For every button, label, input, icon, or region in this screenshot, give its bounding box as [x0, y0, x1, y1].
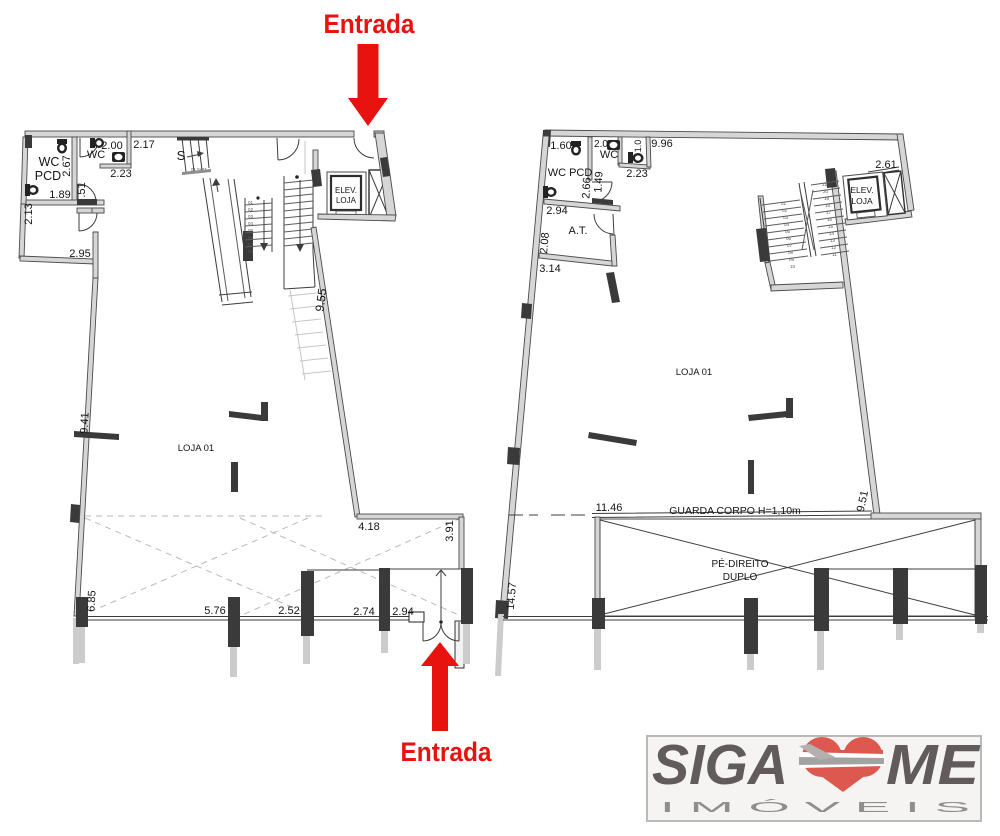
svg-text:6.85: 6.85 [85, 590, 98, 612]
svg-text:06: 06 [786, 236, 792, 241]
svg-text:03: 03 [248, 214, 254, 219]
svg-text:LOJA 01: LOJA 01 [178, 443, 214, 454]
svg-text:2.74: 2.74 [353, 606, 374, 618]
svg-text:.51: .51 [76, 182, 88, 197]
svg-text:WC: WC [87, 149, 105, 161]
svg-text:1.0: 1.0 [633, 140, 643, 153]
svg-text:2.52: 2.52 [278, 605, 299, 617]
svg-text:21: 21 [822, 182, 828, 187]
svg-text:WC: WC [600, 149, 618, 161]
svg-text:03: 03 [783, 215, 789, 220]
svg-text:12: 12 [831, 245, 837, 250]
svg-text:2.66: 2.66 [580, 177, 593, 199]
svg-text:PÉ-DIREITO: PÉ-DIREITO [711, 557, 768, 570]
svg-text:07: 07 [787, 243, 793, 248]
svg-text:2.08: 2.08 [538, 232, 552, 254]
svg-text:02: 02 [782, 208, 788, 213]
svg-text:11: 11 [832, 252, 837, 257]
svg-text:07: 07 [248, 242, 254, 247]
svg-text:06: 06 [248, 235, 254, 240]
svg-text:2.94: 2.94 [392, 606, 413, 618]
svg-text:01: 01 [781, 201, 787, 206]
svg-text:1.89: 1.89 [49, 189, 70, 201]
svg-text:19: 19 [824, 196, 830, 201]
svg-text:2.67: 2.67 [61, 155, 73, 176]
svg-text:05: 05 [248, 228, 254, 233]
svg-text:14.57: 14.57 [505, 582, 519, 610]
svg-text:2.94: 2.94 [546, 205, 567, 217]
svg-text:ELEV.: ELEV. [335, 186, 357, 195]
svg-text:GUARDA CORPO H=1,10m: GUARDA CORPO H=1,10m [669, 505, 801, 517]
svg-text:17: 17 [826, 210, 832, 215]
svg-text:3.14: 3.14 [539, 263, 560, 275]
svg-text:08: 08 [248, 249, 254, 254]
svg-text:14: 14 [829, 231, 835, 236]
svg-text:Entrada: Entrada [401, 737, 493, 767]
svg-text:9.51: 9.51 [855, 489, 871, 512]
svg-text:WC PCD: WC PCD [548, 167, 593, 179]
svg-text:13: 13 [830, 238, 836, 243]
svg-text:16: 16 [827, 217, 833, 222]
svg-text:09: 09 [789, 257, 795, 262]
svg-text:WC: WC [39, 155, 60, 169]
svg-text:9.41: 9.41 [78, 412, 91, 434]
svg-text:9.96: 9.96 [651, 138, 672, 150]
svg-text:2.17: 2.17 [133, 139, 154, 151]
svg-text:11.46: 11.46 [596, 502, 623, 514]
svg-text:A.T.: A.T. [569, 225, 588, 237]
svg-text:4.18: 4.18 [358, 521, 379, 533]
svg-text:04: 04 [248, 221, 254, 226]
svg-text:LOJA: LOJA [336, 196, 357, 205]
svg-text:DUPLO: DUPLO [723, 572, 758, 583]
svg-text:04: 04 [784, 222, 790, 227]
svg-text:05: 05 [785, 229, 791, 234]
svg-text:2.23: 2.23 [626, 168, 647, 180]
svg-text:15: 15 [828, 224, 834, 229]
svg-text:2.13: 2.13 [23, 203, 35, 224]
svg-text:3.91: 3.91 [444, 520, 456, 541]
svg-text:Entrada: Entrada [324, 9, 416, 39]
svg-text:S: S [177, 148, 186, 163]
svg-text:1.49: 1.49 [592, 171, 605, 193]
svg-text:ME: ME [886, 733, 981, 797]
svg-text:02: 02 [248, 207, 254, 212]
svg-text:20: 20 [823, 189, 829, 194]
svg-text:ELEV.: ELEV. [850, 185, 873, 195]
svg-text:LOJA: LOJA [851, 196, 873, 206]
svg-text:LOJA 01: LOJA 01 [676, 367, 712, 378]
svg-text:5.76: 5.76 [204, 605, 225, 617]
svg-text:01: 01 [248, 200, 254, 205]
svg-text:2.61: 2.61 [875, 159, 896, 171]
svg-text:PCD: PCD [35, 169, 61, 183]
svg-text:1.60: 1.60 [550, 140, 571, 152]
svg-text:2.95: 2.95 [69, 248, 90, 260]
svg-text:2.23: 2.23 [110, 168, 131, 180]
svg-text:SIGA: SIGA [652, 733, 788, 797]
svg-text:08: 08 [788, 250, 794, 255]
svg-text:10: 10 [790, 264, 796, 269]
svg-text:18: 18 [825, 203, 831, 208]
svg-text:I M Ó V E I S: I M Ó V E I S [660, 799, 970, 816]
